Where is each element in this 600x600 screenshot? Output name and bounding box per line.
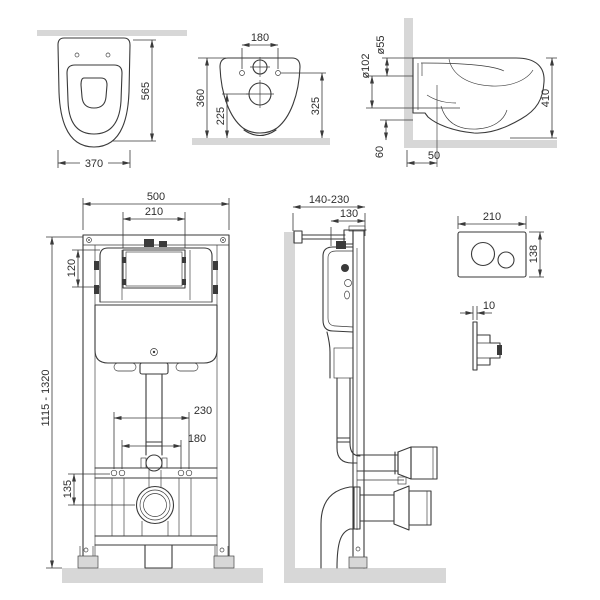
- dim-rear-holes-floor: 325: [310, 97, 322, 115]
- dim-side-inlet-dia: ø55: [375, 36, 387, 55]
- side-profile-outline: [413, 58, 544, 133]
- flush-elbow-side: [337, 443, 360, 463]
- tank-tab: [176, 363, 198, 371]
- plate-mechanism: [477, 335, 500, 365]
- mounting-stud: [111, 470, 117, 476]
- large-flush-button: [472, 243, 495, 266]
- dim-rear-height: 360: [195, 89, 207, 107]
- side-clip: [213, 285, 218, 294]
- hinge-hole: [75, 53, 79, 57]
- leg-screw: [84, 548, 88, 552]
- frame-outline: [83, 235, 229, 556]
- floor-band: [62, 568, 263, 583]
- toilet-top-view: 565 370: [37, 30, 187, 170]
- flush-elbow: [146, 455, 162, 471]
- dim-wall-distance-range: 140-230: [309, 194, 349, 206]
- mechanism-cap: [497, 345, 502, 355]
- toilet-side-view: ø55 ø102 410 60 50: [360, 18, 557, 167]
- flush-pipe-side: [337, 378, 350, 448]
- mounting-stud: [178, 470, 184, 476]
- rail-bracket: [336, 241, 346, 249]
- outlet-cone: [394, 486, 409, 530]
- side-clip: [94, 261, 99, 270]
- dim-rear-trap-floor: 225: [215, 107, 227, 125]
- inlet-connector-pipe: [357, 452, 398, 474]
- dim-plate-height: 138: [528, 245, 540, 263]
- installation-drawing: 565 370 180 360 225 325: [0, 0, 600, 600]
- outlet-pipe: [360, 495, 394, 521]
- dim-side-outlet-dia: ø102: [360, 53, 372, 78]
- flush-port: [345, 291, 350, 299]
- cistern-top: [100, 248, 212, 302]
- flush-port: [341, 264, 349, 272]
- drain-bend-outer: [321, 487, 350, 568]
- wall-bracket-rod: [302, 235, 345, 239]
- access-window: [123, 250, 185, 288]
- outlet-sleeve: [409, 491, 431, 525]
- seat-outline: [67, 65, 122, 134]
- side-clip: [213, 261, 218, 270]
- lower-crossbar: [95, 536, 217, 545]
- inlet-cone: [398, 447, 411, 479]
- dim-outlet-height: 135: [62, 480, 74, 498]
- valve-cap: [159, 241, 167, 247]
- tank-tab: [114, 363, 136, 371]
- cistern-side: [323, 247, 353, 332]
- wall-band: [284, 232, 295, 583]
- floor-band: [404, 140, 557, 148]
- dim-frame-height-range: 1115 - 1320: [40, 369, 52, 426]
- floor-band: [192, 138, 330, 145]
- dim-frame-window-height: 120: [66, 259, 78, 277]
- mounting-rail: [95, 468, 217, 478]
- wall-band: [404, 18, 413, 148]
- dim-frame-width: 500: [147, 191, 165, 203]
- flush-pipe: [146, 374, 162, 455]
- bowl-outline: [58, 38, 130, 147]
- tank-side: [327, 332, 330, 378]
- outlet-flange: [350, 487, 360, 529]
- drain-bend-inner: [337, 529, 350, 568]
- mounting-hole: [276, 71, 281, 76]
- flush-plate-front-view: 210 138: [458, 211, 544, 277]
- drain-duct: [145, 545, 172, 568]
- flush-pipe-connector: [140, 363, 168, 374]
- hinge-hole: [106, 53, 110, 57]
- toilet-rear-view: 180 360 225 325: [192, 32, 330, 145]
- dim-frame-window: 210: [145, 206, 163, 218]
- flush-plate-side-view: 10: [460, 300, 502, 370]
- dim-side-height: 410: [540, 89, 552, 107]
- frame-front-view: 500 210 120 1115 - 1320 230 180 135: [40, 191, 263, 583]
- frame-side-view: 140-230 130: [284, 194, 446, 583]
- wall-anchor: [294, 231, 302, 243]
- leg-screw: [220, 548, 224, 552]
- dim-plate-thickness: 10: [483, 300, 495, 312]
- dim-top-depth: 565: [140, 82, 152, 100]
- dim-studs-outer: 230: [194, 405, 212, 417]
- flush-plate: [458, 232, 526, 277]
- wall-section-band: [37, 30, 187, 36]
- outlet-socket: [137, 487, 174, 524]
- dim-side-offset: 50: [428, 150, 440, 162]
- mounting-hole: [240, 71, 245, 76]
- side-clip: [94, 285, 99, 294]
- flush-port: [345, 280, 352, 287]
- dim-plate-width: 210: [483, 211, 501, 223]
- dim-frame-depth: 130: [340, 208, 358, 220]
- dim-studs-inner: 180: [188, 433, 206, 445]
- leg-screw: [356, 547, 360, 551]
- plate-side-profile: [473, 322, 477, 370]
- frame-rail: [351, 230, 366, 568]
- small-flush-button: [498, 252, 514, 268]
- technical-drawing-sheet: 565 370 180 360 225 325: [0, 0, 600, 600]
- mounting-stud: [119, 470, 125, 476]
- dim-top-width: 370: [85, 158, 103, 170]
- dim-side-clearance: 60: [374, 146, 386, 158]
- bowl-inner-outline: [81, 78, 107, 108]
- cistern-tank: [95, 305, 217, 363]
- mounting-stud: [186, 470, 192, 476]
- floor-band: [284, 568, 446, 583]
- dim-rear-holes: 180: [251, 32, 269, 44]
- valve-cap: [144, 239, 154, 247]
